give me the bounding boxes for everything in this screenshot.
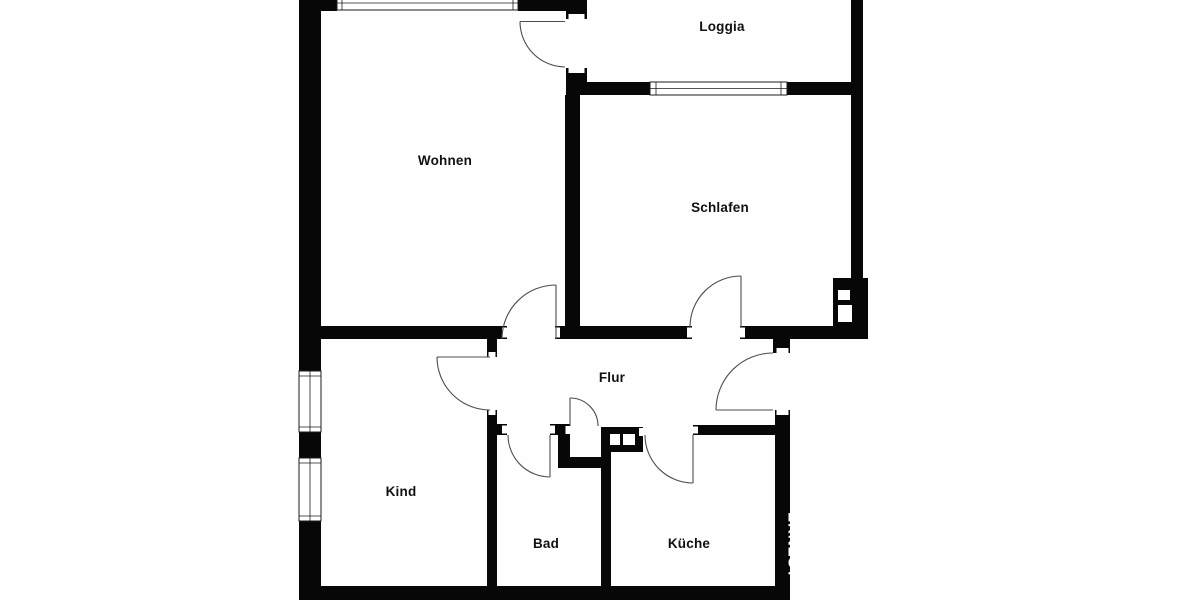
jamb [687, 328, 692, 338]
jamb [569, 68, 585, 73]
door-kueche-flur [645, 435, 693, 483]
floor-plan-canvas: Wohnen Loggia Schlafen Flur Kind Bad Küc… [0, 0, 1200, 600]
wall-segment [566, 82, 650, 95]
wall-segment [299, 586, 790, 600]
jamb [550, 426, 555, 434]
room-label-bad: Bad [533, 536, 559, 551]
wall-segment [518, 0, 566, 11]
shaft-opening [838, 305, 852, 322]
room-label-kueche: Küche [668, 536, 711, 551]
room-label-schlafen: Schlafen [691, 200, 749, 215]
room-label-wohnen: Wohnen [418, 153, 472, 168]
jamb [639, 428, 643, 436]
window-kind-lower [299, 458, 321, 521]
wall-segment [555, 326, 692, 339]
wall-segment [299, 326, 507, 339]
wall-segment [487, 410, 497, 600]
window-wohnen-north [337, 0, 518, 10]
jamb [740, 328, 745, 338]
door-niche-flur [570, 398, 598, 426]
wall-segment [601, 452, 611, 600]
jamb [489, 410, 496, 415]
shaft-opening [623, 434, 635, 445]
wall-segment [299, 0, 337, 11]
door-jambs [489, 14, 789, 436]
shaft-schlafen [833, 278, 868, 338]
door-schlafen-flur [690, 276, 741, 327]
jamb [569, 14, 585, 19]
wall-segment [299, 0, 321, 371]
door-wohnen-loggia [520, 22, 565, 68]
shaft-opening [610, 434, 620, 445]
wall-segment [693, 425, 790, 435]
wall-segment [299, 432, 321, 458]
room-label-kind: Kind [386, 484, 417, 499]
jamb [566, 426, 571, 434]
jamb [693, 427, 698, 434]
jamb [502, 426, 507, 434]
shaft-opening [838, 290, 850, 300]
window-schlafen-north [650, 82, 787, 95]
window-kind-upper [299, 371, 321, 432]
shaft-body [601, 427, 643, 452]
watermark-text: ERNEST [785, 512, 802, 579]
jamb [489, 352, 496, 357]
wall-segment [558, 457, 601, 468]
wall-segment [851, 0, 863, 278]
door-apartment-entrance [716, 353, 773, 410]
door-wohnen-flur [502, 285, 556, 339]
floor-plan-drawing: Wohnen Loggia Schlafen Flur Kind Bad Küc… [0, 0, 1200, 600]
shaft-flur [601, 427, 643, 452]
door-bad-flur [508, 435, 550, 477]
jamb [777, 348, 789, 353]
wall-segment [565, 95, 580, 339]
door-kind-flur [437, 357, 490, 410]
jamb [777, 410, 789, 415]
windows [299, 0, 787, 521]
room-label-flur: Flur [599, 370, 626, 385]
wall-segment [787, 82, 851, 95]
room-label-loggia: Loggia [699, 19, 745, 34]
